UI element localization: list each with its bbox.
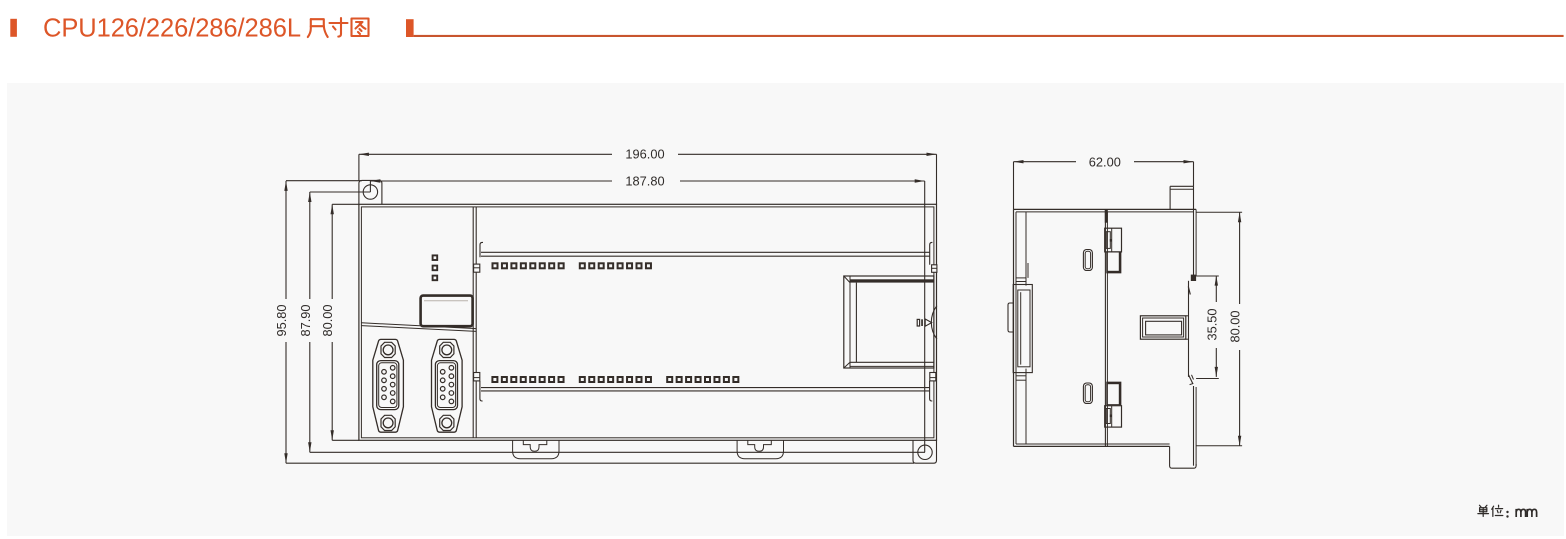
svg-text:95.80: 95.80	[274, 304, 289, 336]
svg-text:35.50: 35.50	[1204, 308, 1219, 340]
svg-text:CPU126/226/286/286L: CPU126/226/286/286L	[43, 15, 301, 43]
svg-text:80.00: 80.00	[1228, 310, 1243, 342]
svg-text:196.00: 196.00	[625, 147, 664, 162]
svg-text:87.90: 87.90	[298, 304, 313, 336]
svg-text:62.00: 62.00	[1089, 154, 1121, 169]
svg-text:80.00: 80.00	[320, 304, 335, 336]
svg-text:187.80: 187.80	[625, 173, 664, 188]
